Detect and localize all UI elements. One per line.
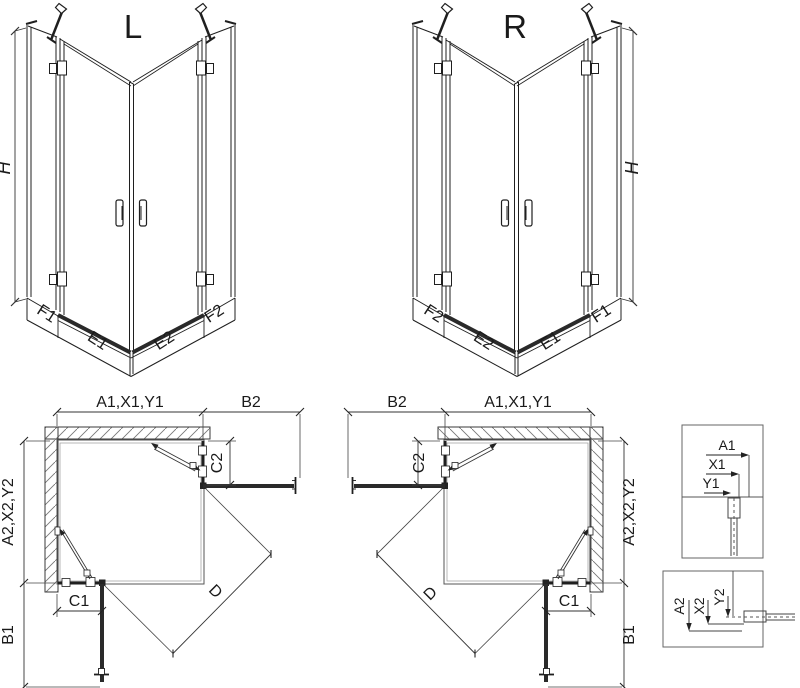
detail-bottom-x2-label: X2 xyxy=(691,597,707,614)
plan-left-fixed-side-label: C2 xyxy=(209,453,226,474)
plan-right-width-label: A1,X1,Y1 xyxy=(484,394,552,411)
detail-bottom-y2-label: Y2 xyxy=(711,588,727,605)
iso-right-title: R xyxy=(503,8,527,45)
plan-right-depth-label: A2,X2,Y2 xyxy=(621,478,638,546)
shower-enclosure-diagram: L H F1 E1 E2 F2 R H F2 E2 E1 F1 A1,X1,Y1… xyxy=(0,0,800,688)
plan-left-return-label: B2 xyxy=(241,394,261,411)
iso-left-title: L xyxy=(124,8,142,45)
plan-right-return-label: B2 xyxy=(387,394,407,411)
iso-right-height-label: H xyxy=(622,161,642,175)
plan-right-fixed-bottom-label: C1 xyxy=(559,593,580,610)
plan-left-width-label: A1,X1,Y1 xyxy=(96,394,164,411)
detail-top-a1-label: A1 xyxy=(718,437,735,453)
plan-left-fixed-bottom-label: C1 xyxy=(69,593,90,610)
detail-top-y1-label: Y1 xyxy=(702,475,719,491)
plan-left-depth-label: A2,X2,Y2 xyxy=(0,478,17,546)
iso-left-height-label: H xyxy=(0,161,14,175)
detail-top-x1-label: X1 xyxy=(708,456,725,472)
detail-bottom-a2-label: A2 xyxy=(671,597,687,614)
plan-right-front-label: B1 xyxy=(621,625,638,645)
plan-left-front-label: B1 xyxy=(0,625,17,645)
plan-right-fixed-side-label: C2 xyxy=(411,453,428,474)
background xyxy=(0,0,800,688)
